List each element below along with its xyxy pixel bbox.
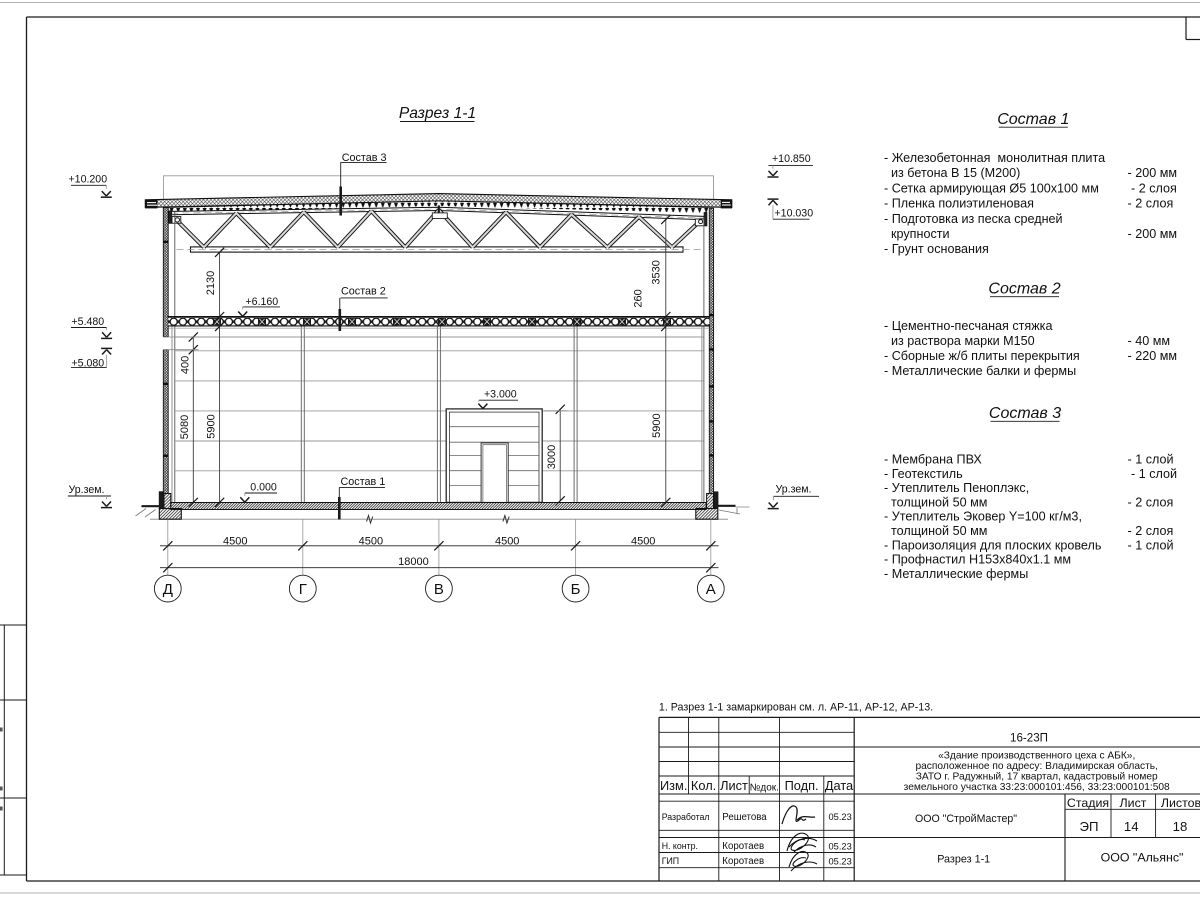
svg-text:Г: Г [299,581,307,598]
svg-text:Лист: Лист [720,778,748,793]
svg-text:- Цементно-песчаная стяжка: - Цементно-песчаная стяжка [884,319,1052,333]
svg-text:- Утеплитель Эковер Y=100 кг/м: - Утеплитель Эковер Y=100 кг/м3, [884,510,1082,524]
svg-text:Коротаев: Коротаев [722,856,764,867]
svg-text:+10.850: +10.850 [772,153,811,165]
svg-text:- 200 мм: - 200 мм [1128,166,1178,180]
svg-text:3530: 3530 [651,260,663,284]
svg-text:Лист: Лист [1120,796,1147,810]
svg-text:Решетова: Решетова [722,812,767,823]
svg-text:Разрез 1-1: Разрез 1-1 [399,105,476,122]
svg-text:Б: Б [571,581,581,598]
svg-text:Состав 3: Состав 3 [989,405,1061,422]
svg-text:5080: 5080 [179,415,191,439]
svg-text:Листов: Листов [1161,796,1200,810]
svg-text:Ур.зем.: Ур.зем. [69,484,105,496]
svg-text:ООО "Альянс": ООО "Альянс" [1101,851,1184,865]
svg-text:- Грунт основания: - Грунт основания [884,242,989,256]
svg-text:18: 18 [1173,819,1188,834]
svg-text:расположенное по адресу: Влади: расположенное по адресу: Владимирская об… [915,760,1157,772]
svg-text:18000: 18000 [398,556,429,568]
svg-text:ГИП: ГИП [662,856,679,866]
svg-text:05.23: 05.23 [829,857,852,867]
svg-text:- 1 слой: - 1 слой [1128,538,1174,552]
svg-text:ООО "СтройМастер": ООО "СтройМастер" [915,813,1017,825]
svg-text:+5.480: +5.480 [72,316,105,328]
svg-text:из раствора марки М150: из раствора марки М150 [884,334,1035,348]
svg-text:- Профнастил Н153х840х1.1 мм: - Профнастил Н153х840х1.1 мм [884,553,1071,567]
svg-text:+3.000: +3.000 [484,389,517,401]
svg-text:- 1 слой: - 1 слой [1128,453,1174,467]
svg-text:0.000: 0.000 [250,481,277,493]
svg-text:«Здание производственного цеха: «Здание производственного цеха с АБК», [938,751,1135,762]
svg-text:2130: 2130 [205,271,217,295]
svg-text:Состав 1: Состав 1 [341,476,386,488]
svg-text:Подп.: Подп. [785,778,819,793]
svg-text:№док.: №док. [750,783,779,794]
svg-text:5900: 5900 [205,414,217,438]
svg-text:4500: 4500 [495,536,519,548]
svg-text:4500: 4500 [223,536,247,548]
svg-text:5900: 5900 [651,413,663,437]
svg-text:толщиной 50 мм: толщиной 50 мм [884,524,987,538]
svg-text:Разрез 1-1: Разрез 1-1 [937,854,990,866]
svg-text:Кол.: Кол. [691,778,716,793]
svg-text:- 2 слоя: - 2 слоя [1128,181,1177,195]
svg-text:+10.200: +10.200 [69,174,108,186]
svg-text:Состав 2: Состав 2 [341,286,386,298]
svg-text:- 40 мм: - 40 мм [1128,334,1171,348]
svg-text:- Сборные ж/б плиты перекрытия: - Сборные ж/б плиты перекрытия [884,349,1080,363]
svg-text:- Металлические балки и фермы: - Металлические балки и фермы [884,364,1076,378]
svg-text:- 200 мм: - 200 мм [1128,227,1178,241]
svg-text:Разработал: Разработал [662,812,710,822]
svg-text:- Пленка полиэтиленовая: - Пленка полиэтиленовая [884,197,1034,211]
svg-text:1. Разрез 1-1 замаркирован см.: 1. Разрез 1-1 замаркирован см. л. АР-11,… [659,701,933,713]
svg-text:Состав 2: Состав 2 [988,281,1060,298]
svg-text:крупности: крупности [884,227,950,241]
svg-text:ЭП: ЭП [1080,819,1099,834]
svg-text:- 2 слоя: - 2 слоя [1128,524,1174,538]
svg-text:земельного участка 33:23:00010: земельного участка 33:23:000101:456, 33:… [904,782,1170,793]
svg-text:- Сетка армирующая Ø5 100х100: - Сетка армирующая Ø5 100х100 мм [884,181,1099,195]
svg-text:+5.080: +5.080 [72,357,105,369]
svg-text:- Металлические фермы: - Металлические фермы [884,567,1028,581]
svg-text:В: В [434,581,444,598]
svg-text:Коротаев: Коротаев [722,841,764,852]
svg-text:Д: Д [163,581,173,598]
svg-text:3000: 3000 [546,445,558,469]
svg-text:Стадия: Стадия [1067,796,1109,810]
svg-text:4500: 4500 [631,536,655,548]
svg-text:400: 400 [180,356,192,374]
svg-text:толщиной 50 мм: толщиной 50 мм [884,495,987,509]
svg-text:05.23: 05.23 [829,842,852,852]
svg-text:Состав 1: Состав 1 [997,111,1069,128]
svg-text:4500: 4500 [359,536,383,548]
svg-text:260: 260 [633,289,645,307]
svg-text:Н. контр.: Н. контр. [662,841,698,851]
svg-text:из бетона В 15 (М200): из бетона В 15 (М200) [884,166,1020,180]
svg-text:- 1 слой: - 1 слой [1128,467,1178,481]
svg-text:Ур.зем.: Ур.зем. [776,484,812,496]
svg-text:Изм.: Изм. [660,778,687,793]
svg-text:05.23: 05.23 [829,812,852,822]
svg-text:- Утеплитель Пеноплэкс,: - Утеплитель Пеноплэкс, [884,481,1029,495]
svg-text:- Геотекстиль: - Геотекстиль [884,467,963,481]
svg-text:ЗАТО г. Радужный, 17 квартал,: ЗАТО г. Радужный, 17 квартал, кадастровы… [916,771,1158,782]
svg-text:14: 14 [1124,819,1139,834]
svg-text:- 2 слоя: - 2 слоя [1128,495,1174,509]
svg-text:+10.030: +10.030 [775,207,814,219]
svg-text:+6.160: +6.160 [246,296,279,308]
svg-text:- Железобетонная монолитная п: - Железобетонная монолитная плита [884,151,1105,165]
svg-text:Дата: Дата [825,778,854,793]
svg-text:- 220 мм: - 220 мм [1128,349,1178,363]
svg-text:- Подготовка из песка средней: - Подготовка из песка средней [884,212,1063,226]
svg-text:А: А [706,581,716,598]
svg-text:- Мембрана ПВХ: - Мембрана ПВХ [884,453,982,467]
svg-text:- Пароизоляция для плоских кро: - Пароизоляция для плоских кровель [884,538,1102,552]
svg-text:16-23П: 16-23П [1010,732,1048,745]
svg-text:- 2 слоя: - 2 слоя [1128,197,1174,211]
